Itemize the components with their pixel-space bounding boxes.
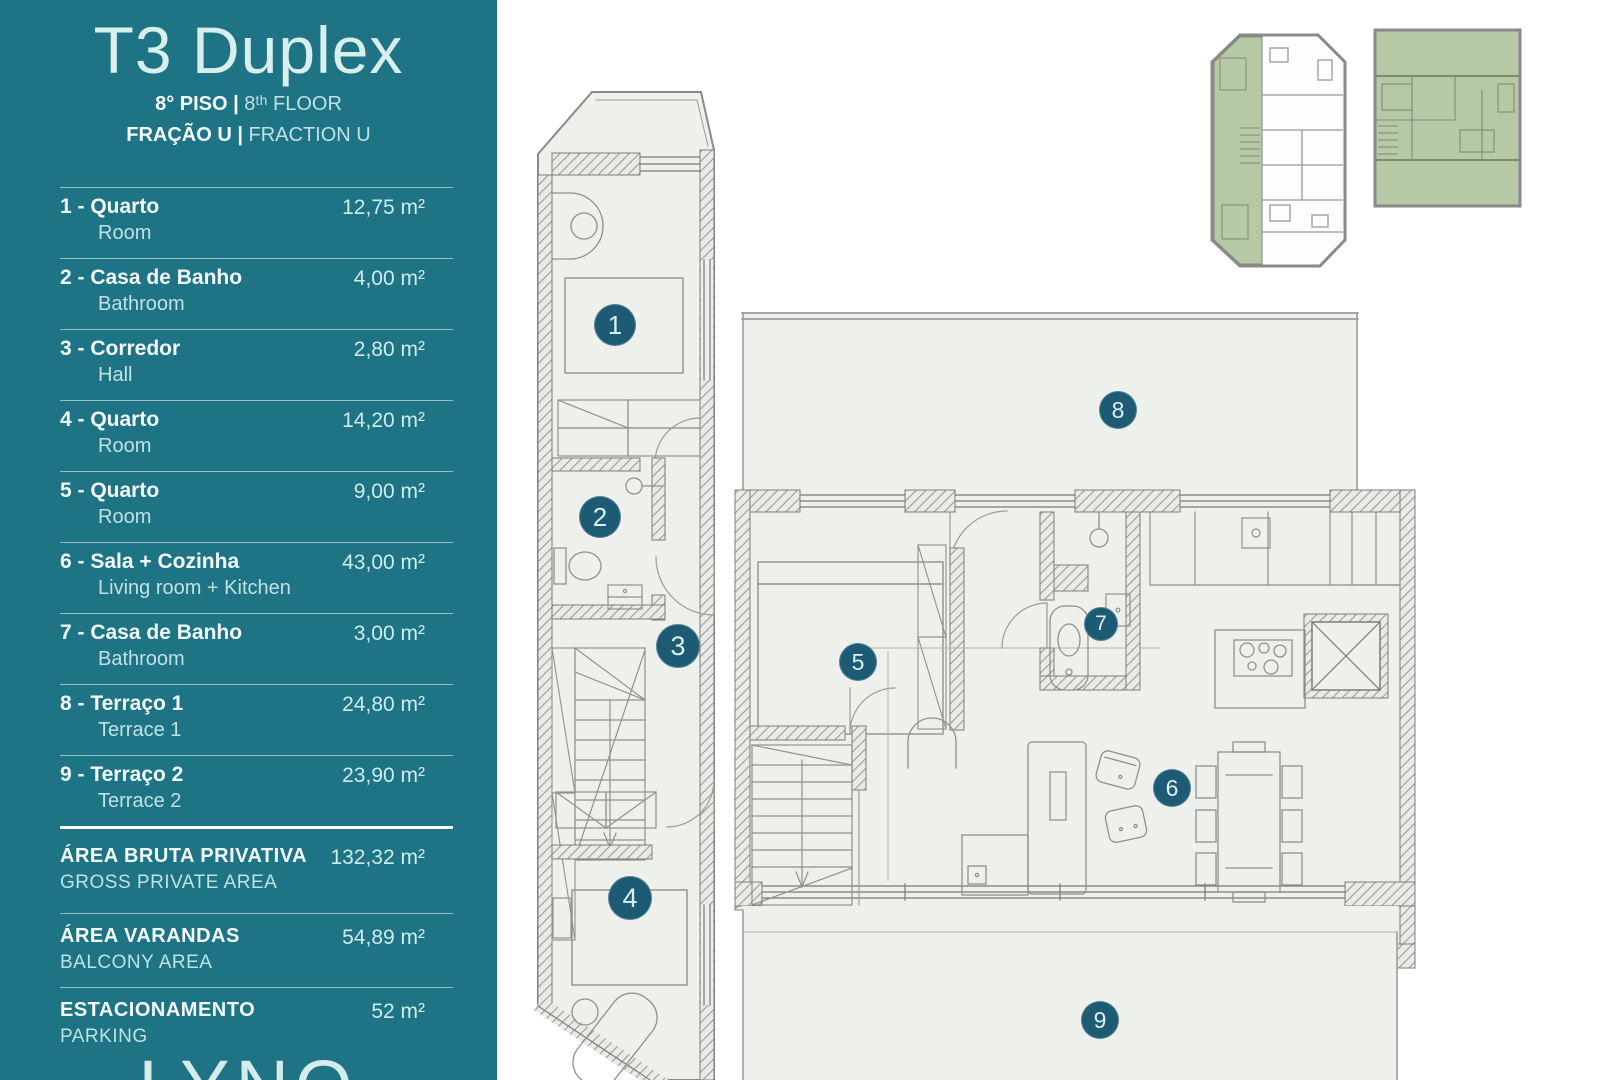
room-row-4: 4 - Quarto Room 14,20 m² (60, 400, 453, 471)
floor-label-pt: 8° PISO | (155, 93, 239, 115)
plan-badge-2: 2 (579, 496, 621, 538)
plan-badge-4: 4 (608, 876, 652, 920)
total-sublabel: GROSS PRIVATE AREA (60, 872, 453, 894)
plan-badge-3: 3 (656, 624, 700, 668)
plan-badge-1: 1 (594, 304, 636, 346)
room-sublabel: Room (98, 222, 453, 245)
plan-badge-9: 9 (1081, 1001, 1119, 1039)
sidebar: T3 Duplex 8° PISO | 8ᵗʰ FLOOR FRAÇÃO U |… (0, 0, 497, 1080)
fraction-label-en: FRACTION U (249, 124, 371, 146)
lynq-logo: LYNQ (0, 1050, 497, 1080)
room-row-6: 6 - Sala + Cozinha Living room + Kitchen… (60, 542, 453, 613)
room-row-2: 2 - Casa de Banho Bathroom 4,00 m² (60, 258, 453, 329)
total-area: 52 m² (371, 1000, 425, 1024)
page-title: T3 Duplex (0, 14, 497, 87)
total-area: 132,32 m² (330, 846, 425, 870)
lower-floor-plan (735, 312, 1415, 1080)
room-area: 3,00 m² (354, 622, 425, 646)
room-schedule: 1 - Quarto Room 12,75 m² 2 - Casa de Ban… (60, 187, 453, 1061)
floor-line: 8° PISO | 8ᵗʰ FLOOR (0, 91, 497, 118)
room-area: 4,00 m² (354, 267, 425, 291)
room-area: 9,00 m² (354, 480, 425, 504)
fraction-line: FRAÇÃO U | FRACTION U (0, 122, 497, 149)
plan-badge-7: 7 (1084, 607, 1118, 641)
total-gross-private-area: ÁREA BRUTA PRIVATIVA GROSS PRIVATE AREA … (60, 829, 453, 913)
room-sublabel: Bathroom (98, 293, 453, 316)
room-area: 24,80 m² (342, 693, 425, 717)
floor-label-en: 8ᵗʰ FLOOR (244, 93, 342, 115)
sidebar-header: T3 Duplex 8° PISO | 8ᵗʰ FLOOR FRAÇÃO U |… (0, 0, 497, 149)
plan-badge-6: 6 (1153, 769, 1191, 807)
upper-floor-plan (538, 92, 714, 1080)
room-area: 23,90 m² (342, 764, 425, 788)
room-row-1: 1 - Quarto Room 12,75 m² (60, 187, 453, 258)
room-row-7: 7 - Casa de Banho Bathroom 3,00 m² (60, 613, 453, 684)
shaft-void (1304, 614, 1388, 698)
room-sublabel: Hall (98, 364, 453, 387)
room-area: 43,00 m² (342, 551, 425, 575)
floorplan-sheet: T3 Duplex 8° PISO | 8ᵗʰ FLOOR FRAÇÃO U |… (0, 0, 1620, 1080)
room-sublabel: Room (98, 435, 453, 458)
room-sublabel: Terrace 2 (98, 790, 453, 813)
room-area: 12,75 m² (342, 196, 425, 220)
room-row-5: 5 - Quarto Room 9,00 m² (60, 471, 453, 542)
room-row-3: 3 - Corredor Hall 2,80 m² (60, 329, 453, 400)
total-area: 54,89 m² (342, 926, 425, 950)
total-balcony-area: ÁREA VARANDAS BALCONY AREA 54,89 m² (60, 913, 453, 987)
highlight-unit-strip (1214, 37, 1262, 264)
room-sublabel: Living room + Kitchen (98, 577, 453, 600)
plan-badge-8: 8 (1099, 391, 1137, 429)
total-sublabel: BALCONY AREA (60, 952, 453, 974)
plan-badge-5: 5 (839, 643, 877, 681)
room-area: 14,20 m² (342, 409, 425, 433)
room-row-8: 8 - Terraço 1 Terrace 1 24,80 m² (60, 684, 453, 755)
room-row-9: 9 - Terraço 2 Terrace 2 23,90 m² (60, 755, 453, 826)
thumbnail-building-plan (1212, 35, 1345, 266)
room-sublabel: Room (98, 506, 453, 529)
room-sublabel: Bathroom (98, 648, 453, 671)
fraction-label-pt: FRAÇÃO U | (126, 124, 243, 146)
floorplans (497, 0, 1620, 1080)
area-totals: ÁREA BRUTA PRIVATIVA GROSS PRIVATE AREA … (60, 826, 453, 1061)
room-area: 2,80 m² (354, 338, 425, 362)
room-sublabel: Terrace 1 (98, 719, 453, 742)
thumbnail-upper-unit-plan (1375, 30, 1520, 206)
